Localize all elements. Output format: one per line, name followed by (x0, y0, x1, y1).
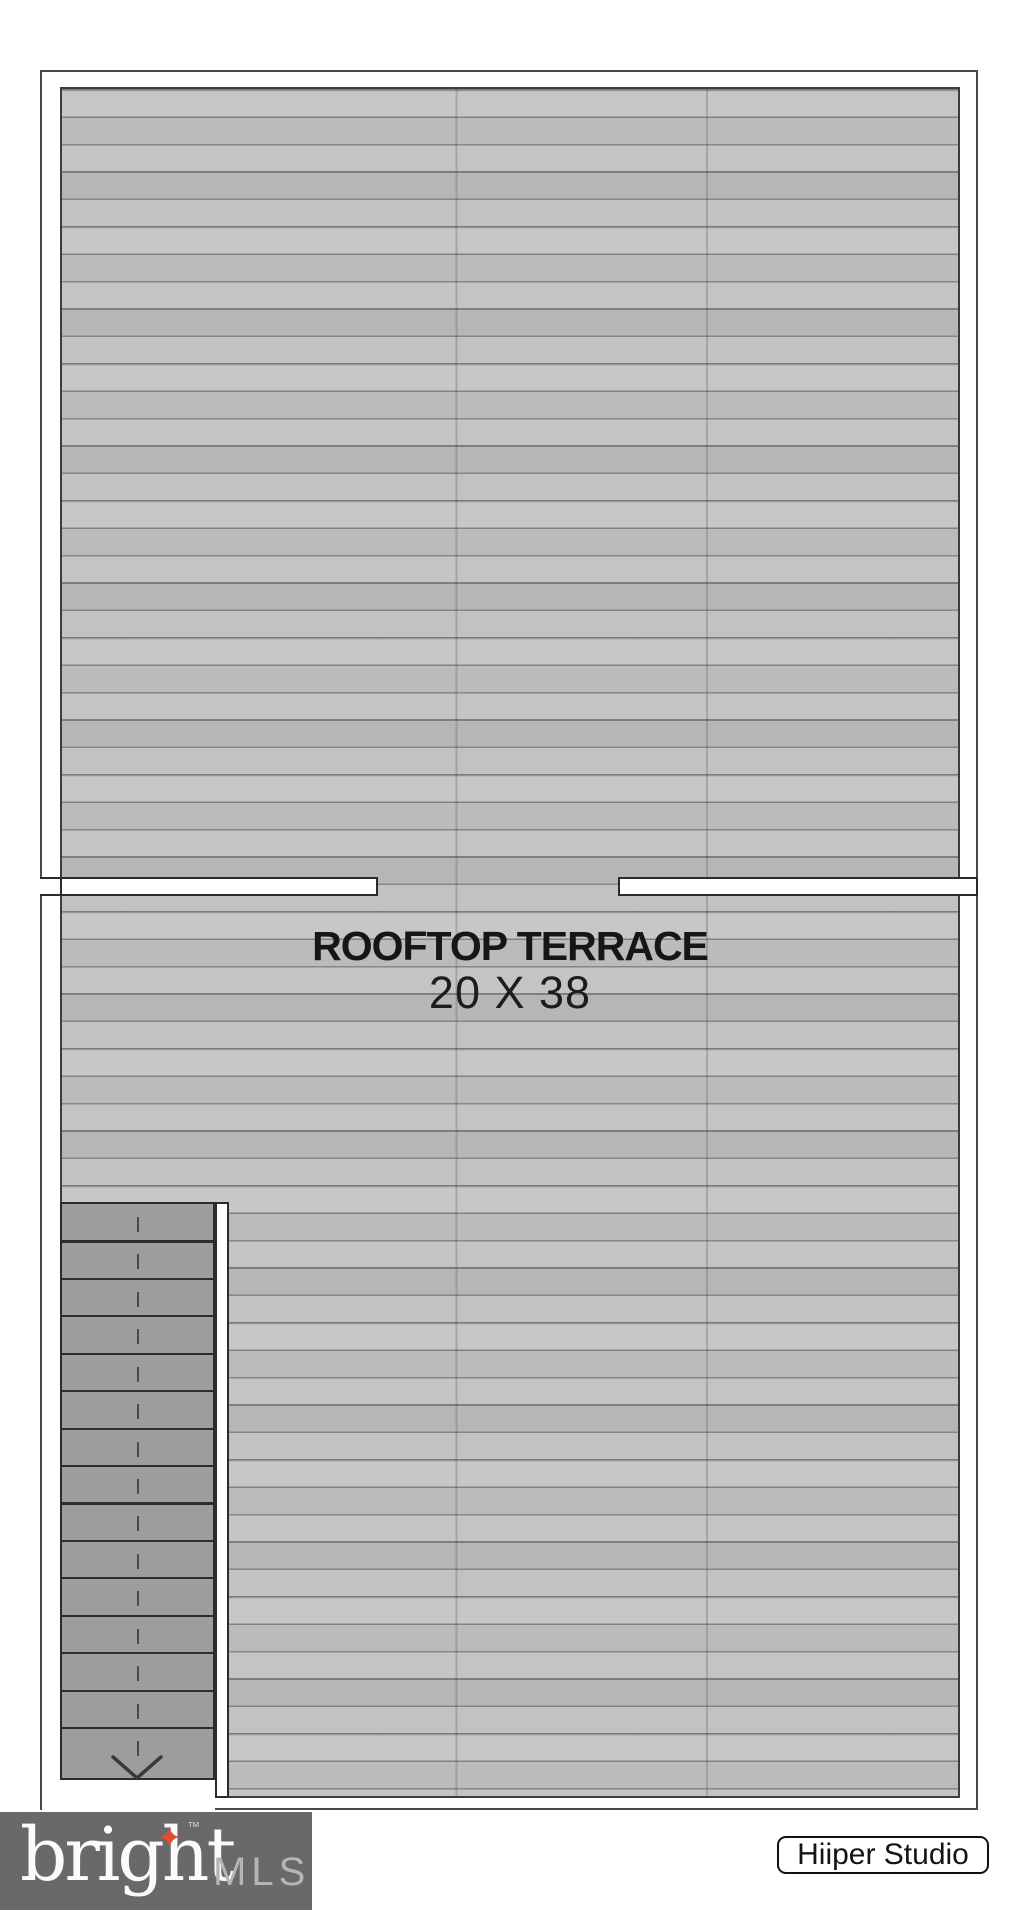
studio-credit-badge: Hiiper Studio (777, 1836, 989, 1874)
stair-side-wall-strip (215, 1202, 229, 1798)
border-patch (42, 1805, 215, 1812)
brand-mls-text: MLS (213, 1852, 310, 1892)
parapet-wall-segment-right (618, 877, 978, 896)
staircase (60, 1202, 215, 1812)
wall-margin-tick-left (40, 877, 60, 896)
brand-name-text: bright (20, 1818, 233, 1892)
brightmls-logo-badge: bright ✦ ™ MLS (0, 1812, 312, 1910)
room-title: ROOFTOP TERRACE (60, 924, 960, 969)
room-dimensions: 20 X 38 (60, 968, 960, 1018)
floorplan-page: ROOFTOP TERRACE 20 X 38 bright ✦ ™ MLS H… (0, 0, 1024, 1910)
stairs-down-arrow-icon (60, 1202, 215, 1812)
parapet-wall-segment-left (60, 877, 378, 896)
trademark-symbol: ™ (187, 1820, 200, 1833)
brand-star-icon: ✦ (157, 1824, 182, 1854)
